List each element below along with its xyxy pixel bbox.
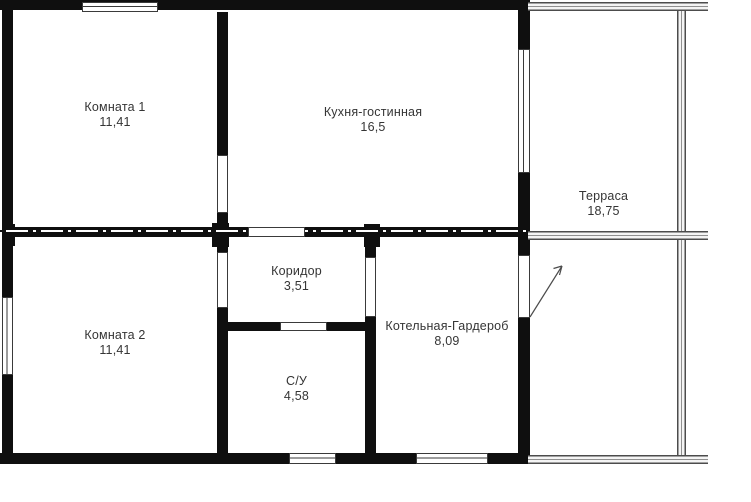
room-area-kotelnaya-garderob: 8,09 xyxy=(376,334,518,349)
room-name-komnata-1: Комната 1 xyxy=(13,100,217,115)
room-area-kuhnya-gostinnaya: 16,5 xyxy=(228,120,518,135)
room-name-kotelnaya-garderob: Котельная-Гардероб xyxy=(376,319,518,334)
room-area-terrasa: 18,75 xyxy=(530,204,677,219)
room-label-kotelnaya-garderob: Котельная-Гардероб 8,09 xyxy=(376,319,518,349)
room-label-komnata-2: Комната 2 11,41 xyxy=(13,328,217,358)
room-name-koridor: Коридор xyxy=(228,264,365,279)
room-area-s-u: 4,58 xyxy=(228,389,365,404)
room-area-komnata-2: 11,41 xyxy=(13,343,217,358)
room-label-kuhnya-gostinnaya: Кухня-гостинная 16,5 xyxy=(228,105,518,135)
room-area-komnata-1: 11,41 xyxy=(13,115,217,130)
room-name-komnata-2: Комната 2 xyxy=(13,328,217,343)
door-swing-line xyxy=(0,0,751,502)
room-label-terrasa: Терраса 18,75 xyxy=(530,189,677,219)
room-label-komnata-1: Комната 1 11,41 xyxy=(13,100,217,130)
room-label-s-u: С/У 4,58 xyxy=(228,374,365,404)
room-name-s-u: С/У xyxy=(228,374,365,389)
room-label-koridor: Коридор 3,51 xyxy=(228,264,365,294)
floor-plan: Комната 1 11,41 Кухня-гостинная 16,5 Тер… xyxy=(0,0,751,502)
room-name-terrasa: Терраса xyxy=(530,189,677,204)
room-area-koridor: 3,51 xyxy=(228,279,365,294)
room-name-kuhnya-gostinnaya: Кухня-гостинная xyxy=(228,105,518,120)
